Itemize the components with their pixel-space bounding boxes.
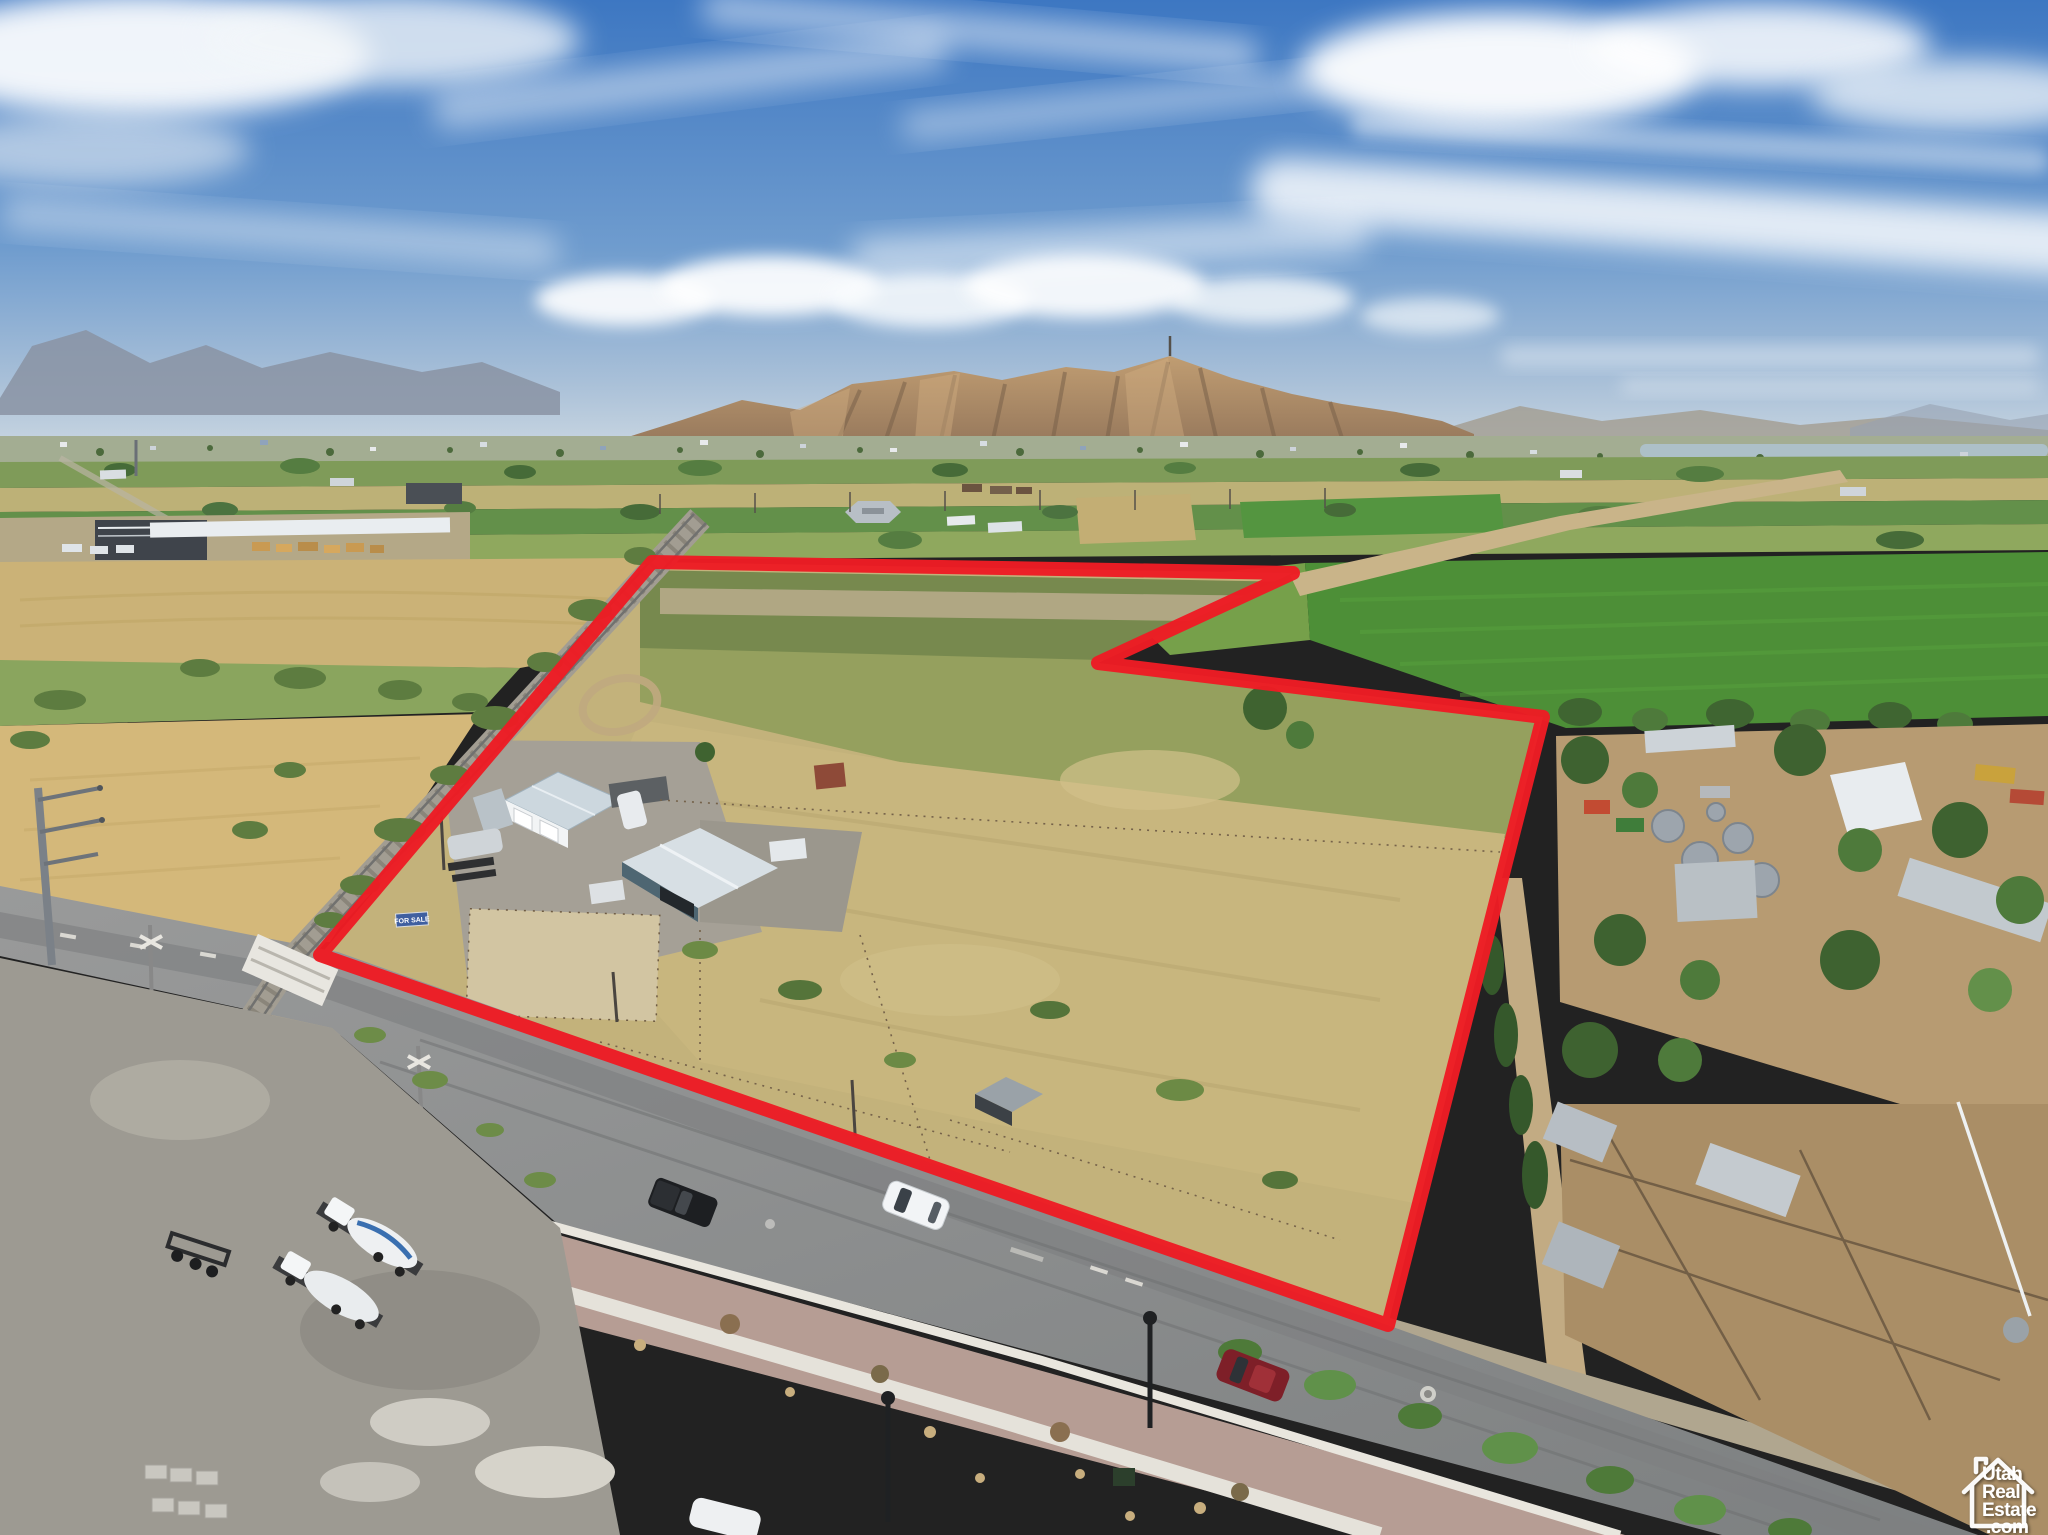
watermark-line-4: .com [1986,1517,2028,1535]
utility-box-east [1113,1468,1135,1486]
lake-strip [1640,444,2048,457]
for-sale-sign: FOR SALE [394,912,431,927]
sandy-paddock [466,909,660,1022]
white-car-partial [687,1496,762,1535]
dark-building-2 [406,483,462,504]
gravel-pile [370,1398,490,1446]
street-lamp [881,1391,895,1522]
white-shack [769,838,807,862]
round-water-tank [2003,1317,2029,1343]
aerial-photo: FOR SALE Utah Real Estate .com [0,0,2048,1535]
red-shed [814,762,846,789]
manhole-cover [765,1219,775,1229]
gravel-pile-2 [475,1446,615,1498]
farm-house [1675,860,1758,922]
